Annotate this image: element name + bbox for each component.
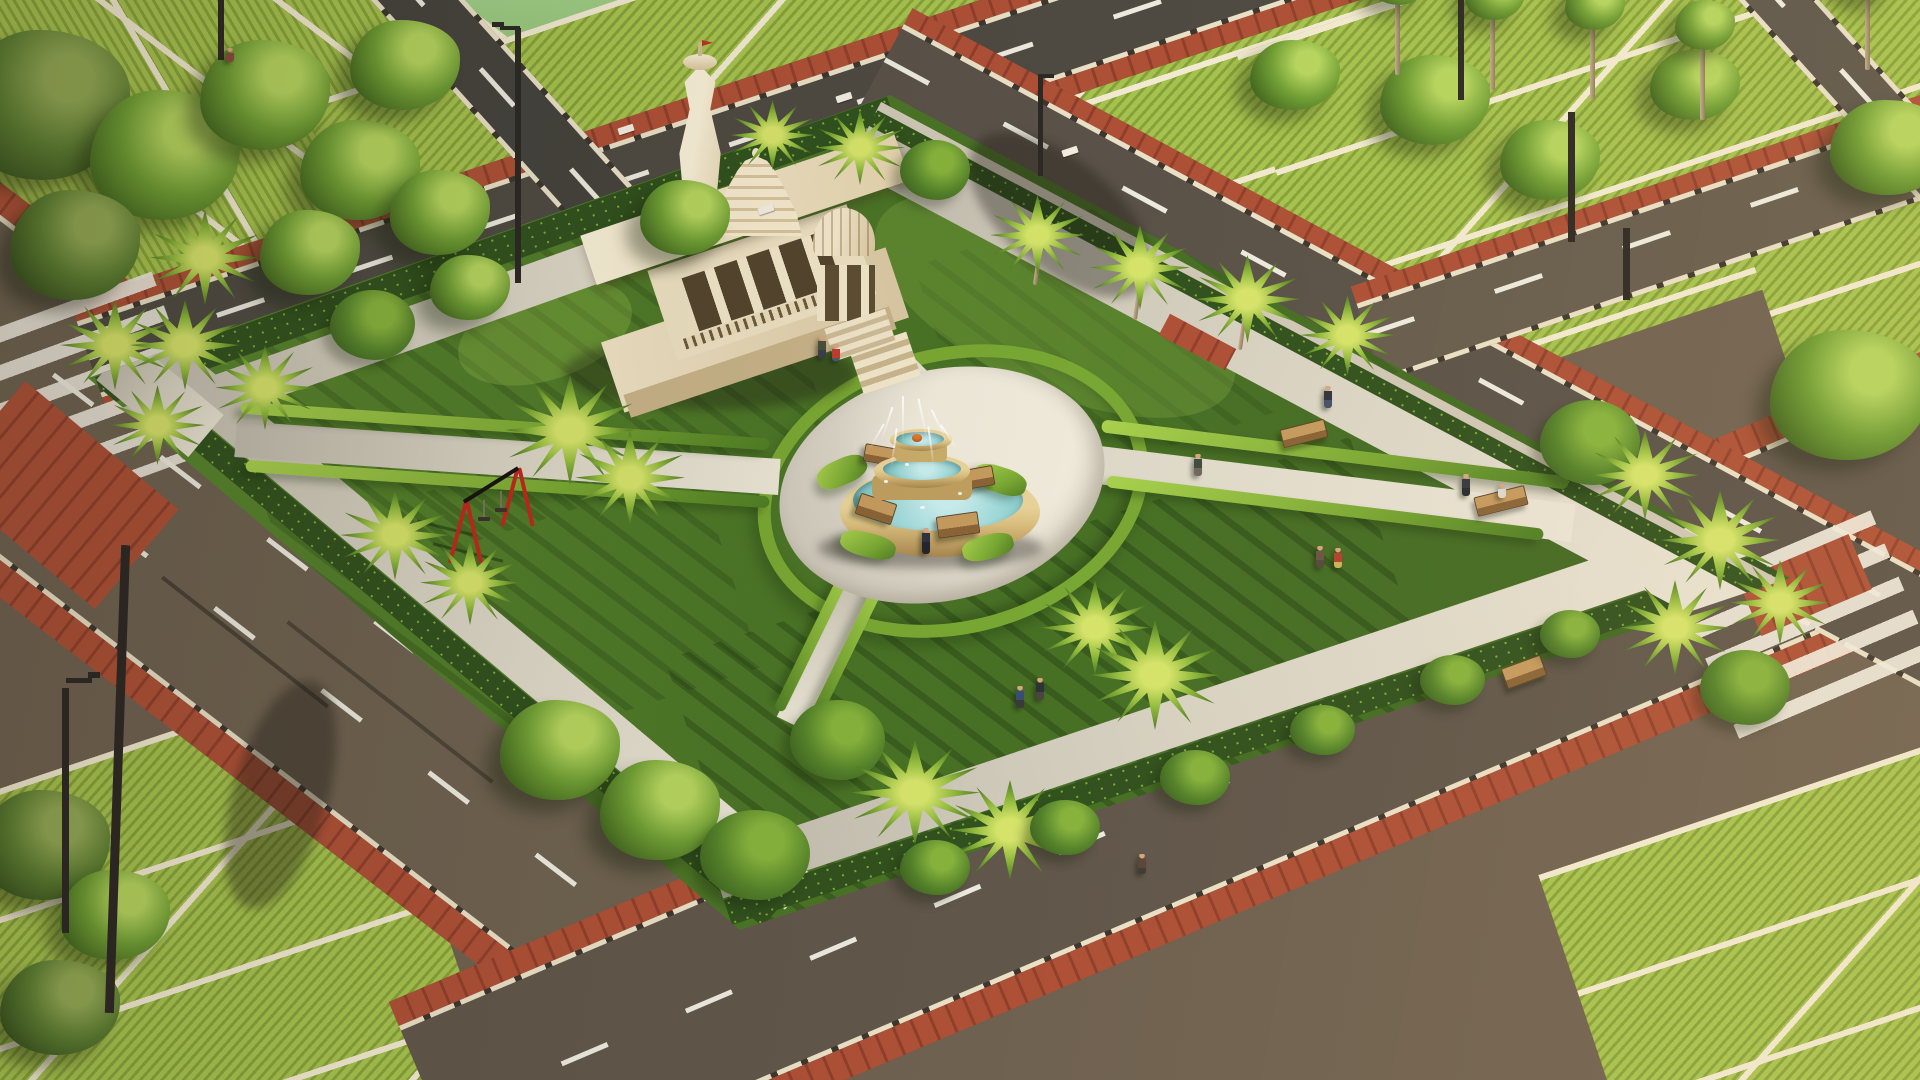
temple-flag (702, 40, 713, 48)
person (1324, 386, 1332, 408)
distant-tree-trunk (1490, 10, 1495, 90)
shrub (900, 840, 970, 895)
shrub (1290, 705, 1355, 755)
temple-porch-columns (817, 265, 875, 321)
person (1334, 548, 1342, 568)
shrub (1030, 800, 1100, 855)
tree-canopy (1770, 330, 1920, 460)
street-lamp-pole (1568, 112, 1575, 242)
person (1016, 686, 1024, 708)
street-lamp-pole (62, 688, 69, 933)
street-lamp-pole (1623, 228, 1630, 300)
distant-tree-trunk (1865, 0, 1870, 70)
person (1316, 546, 1324, 568)
street-lamp-pole (1458, 0, 1464, 100)
plot-grid-bottom-right (1538, 742, 1920, 1080)
swing-rope (500, 491, 502, 509)
water-sparkle (905, 463, 909, 466)
person (1498, 484, 1506, 498)
swing-seat (495, 508, 507, 512)
street-lamp-arm (1038, 74, 1054, 78)
person (818, 336, 826, 358)
street-lamp-head (492, 22, 504, 27)
distant-tree-trunk (1700, 40, 1705, 120)
shrub (330, 290, 415, 360)
swing-frame-leg (517, 467, 534, 526)
person (1194, 454, 1202, 476)
person (832, 344, 840, 361)
shrub (700, 810, 810, 900)
person (226, 48, 234, 62)
person (1036, 678, 1044, 700)
swing-seat (478, 517, 490, 521)
person (922, 528, 930, 554)
street-lamp-head (88, 672, 100, 678)
water-sparkle (884, 480, 888, 483)
person (1138, 854, 1146, 874)
shrub (1420, 655, 1485, 705)
street-lamp-pole (515, 28, 521, 283)
shrub (1160, 750, 1230, 805)
street-lamp-pole (218, 0, 224, 60)
spire-finial (698, 42, 702, 56)
shrub (900, 140, 970, 200)
shrub (790, 700, 885, 780)
aerial-render-scene (0, 0, 1920, 1080)
distant-tree-trunk (1395, 0, 1400, 75)
street-lamp-arm (66, 678, 92, 683)
swing-rope (483, 500, 485, 518)
water-jet (902, 396, 904, 442)
spire-amalaka-cap (683, 54, 717, 70)
distant-tree-trunk (1590, 20, 1595, 100)
street-lamp-pole (1038, 76, 1043, 176)
person (1462, 474, 1470, 496)
water-sparkle (958, 492, 962, 495)
shrub (1540, 610, 1600, 658)
water-sparkle (920, 506, 925, 509)
shrub (1700, 650, 1790, 725)
temple (560, 40, 940, 400)
fountain-flower-ornament (912, 434, 922, 442)
